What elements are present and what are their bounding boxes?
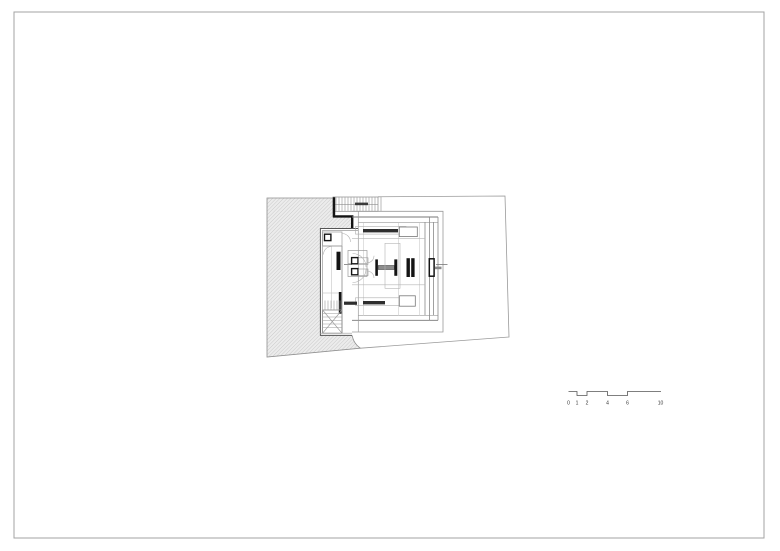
counter-south xyxy=(344,302,357,305)
column xyxy=(429,259,434,276)
scale-label-1: 1 xyxy=(576,401,579,407)
fixture xyxy=(352,269,358,275)
scale-bar: 0 1 2 4 6 10 xyxy=(567,392,663,407)
core-wall-segment xyxy=(337,252,341,270)
scale-label-10: 10 xyxy=(658,401,664,407)
bed-north xyxy=(399,227,417,237)
scale-bar-line xyxy=(569,392,662,396)
scale-label-6: 6 xyxy=(626,401,629,407)
floor-plan-canvas: 0 1 2 4 6 10 xyxy=(0,0,780,551)
fixture xyxy=(325,234,331,240)
column-tick xyxy=(435,267,442,270)
wardrobe-south xyxy=(363,301,385,304)
scale-label-0: 0 xyxy=(567,401,570,407)
scale-label-2: 2 xyxy=(586,401,589,407)
bed-south xyxy=(399,296,415,306)
scale-label-4: 4 xyxy=(606,401,609,407)
drawing-sheet: 0 1 2 4 6 10 xyxy=(0,0,780,551)
fixture xyxy=(352,258,358,264)
wardrobe-north xyxy=(363,229,398,232)
